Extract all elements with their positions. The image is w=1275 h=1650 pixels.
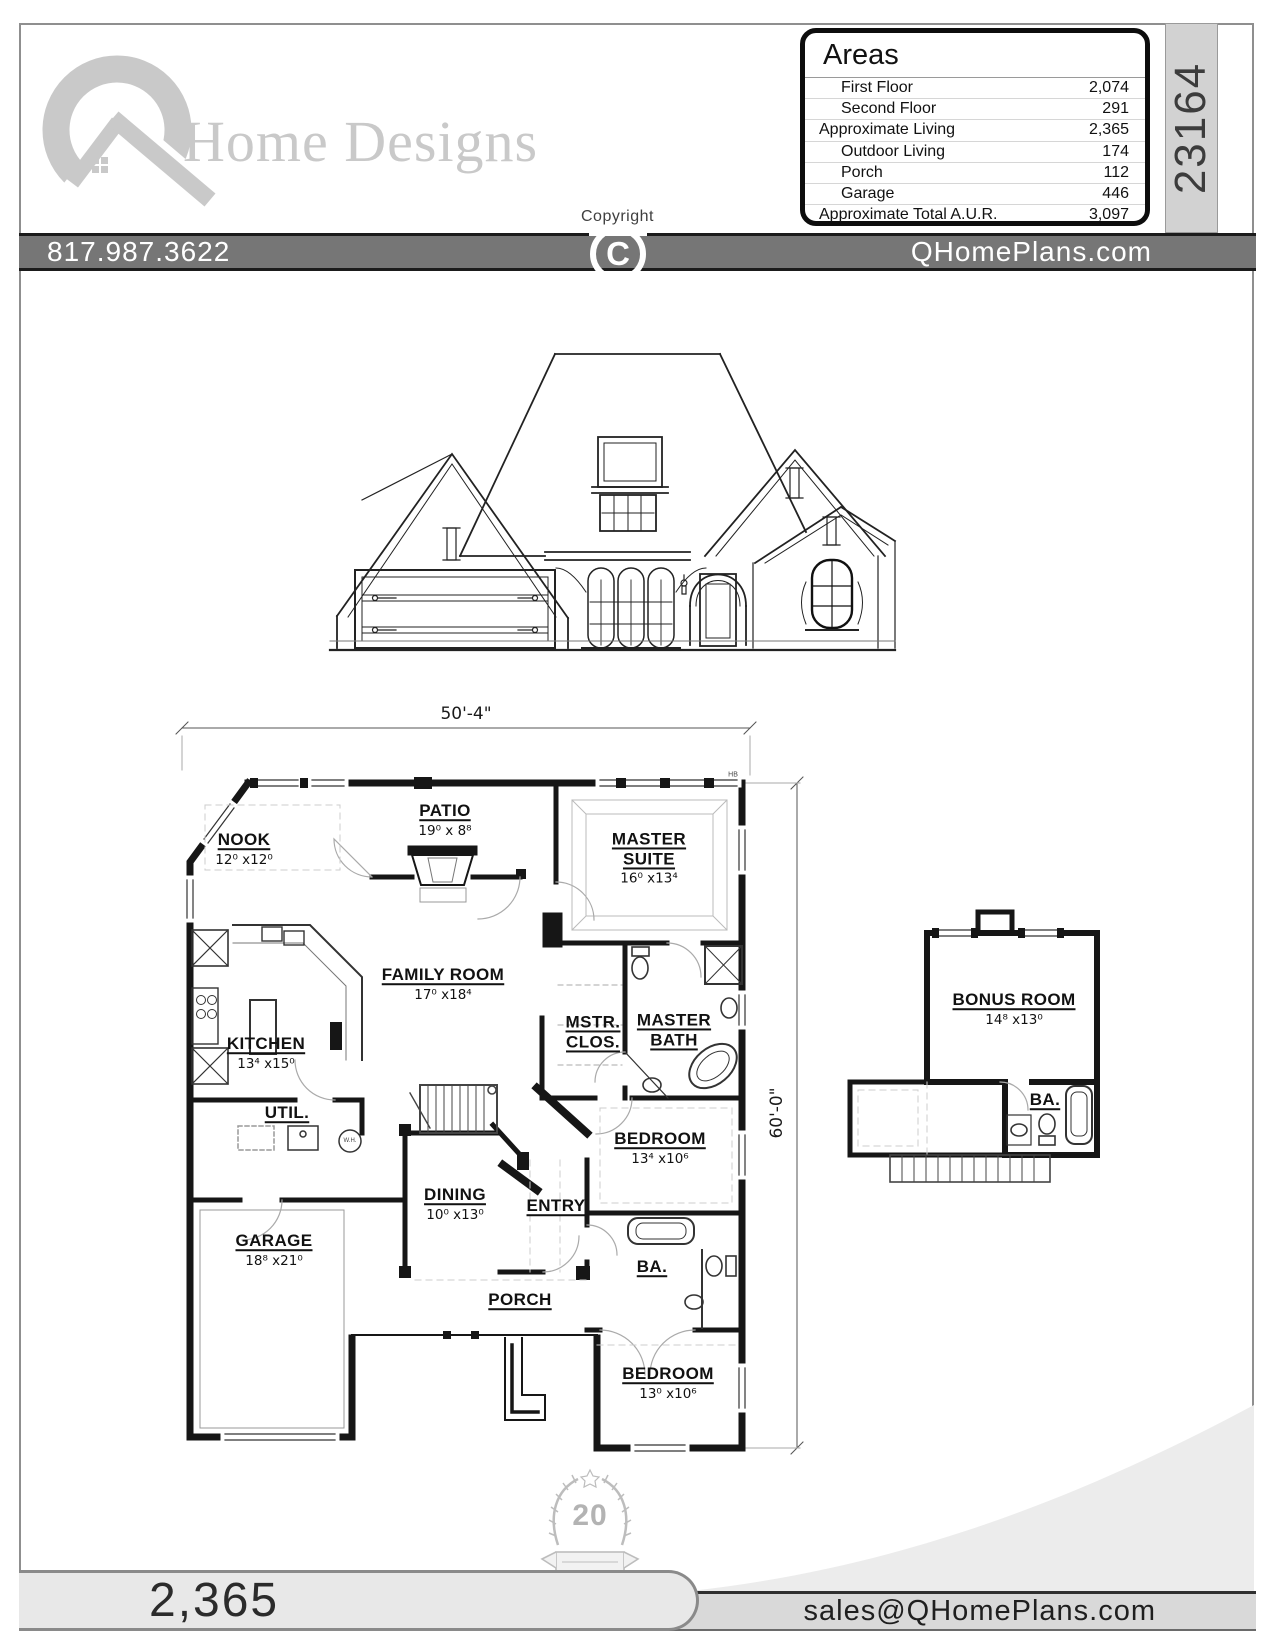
drawings-layer [0,0,1275,1650]
room-name: PORCH [488,1290,551,1310]
water-heater-label: W.H. [344,1138,357,1144]
room-label-entry: ENTRY [527,1196,586,1216]
badge-number: 20 [572,1499,607,1533]
room-name: MASTER BATH [626,1010,722,1049]
room-name: PATIO [418,801,471,821]
room-label-master-suite: MASTER SUITE16⁰ x13⁴ [597,829,701,886]
room-dimensions: 13⁴ x15⁰ [227,1056,305,1072]
living-area-tab: 2,365 [19,1570,699,1631]
room-label-kitchen: KITCHEN13⁴ x15⁰ [227,1034,305,1072]
room-label-dining: DINING10⁰ x13⁰ [424,1185,486,1223]
room-label-bath-2: BA. [1030,1090,1060,1110]
room-label-util: UTIL. [265,1103,310,1123]
plan-width-dimension: 50'-4" [440,704,491,724]
room-label-nook: NOOK12⁰ x12⁰ [215,830,272,868]
bonus-room-drawing [850,912,1097,1182]
room-label-family-room: FAMILY ROOM17⁰ x18⁴ [382,965,504,1003]
room-label-bonus-room: BONUS ROOM14⁸ x13⁰ [953,990,1076,1028]
room-dimensions: 13⁴ x10⁶ [614,1151,706,1167]
sales-email: sales@QHomePlans.com [804,1595,1156,1628]
room-dimensions: 17⁰ x18⁴ [382,987,504,1003]
room-dimensions: 13⁰ x10⁶ [622,1386,714,1402]
room-name: NOOK [215,830,272,850]
elevation-drawing [330,354,895,650]
room-label-garage: GARAGE18⁸ x21⁰ [235,1231,312,1269]
room-dimensions: 18⁸ x21⁰ [235,1253,312,1269]
room-name: ENTRY [527,1196,586,1216]
room-name: BONUS ROOM [953,990,1076,1010]
room-name: UTIL. [265,1103,310,1123]
living-area-total: 2,365 [149,1573,279,1628]
plan-depth-dimension: 60'-0" [767,1087,787,1138]
room-dimensions: 19⁰ x 8⁸ [418,823,471,839]
room-label-bedroom-2: BEDROOM13⁰ x10⁶ [622,1364,714,1402]
room-label-master-bath: MASTER BATH [626,1010,722,1049]
room-label-patio: PATIO19⁰ x 8⁸ [418,801,471,839]
room-name: BA. [637,1257,667,1277]
room-name: MASTER SUITE [597,829,701,868]
room-label-bath-1: BA. [637,1257,667,1277]
room-name: BEDROOM [622,1364,714,1384]
room-name: FAMILY ROOM [382,965,504,985]
room-label-mstr-clos: MSTR. CLOS. [557,1012,629,1051]
room-dimensions: 14⁸ x13⁰ [953,1012,1076,1028]
room-name: GARAGE [235,1231,312,1251]
room-name: DINING [424,1185,486,1205]
room-dimensions: 12⁰ x12⁰ [215,852,272,868]
hose-bib-marker: HB [728,772,738,779]
room-label-porch: PORCH [488,1290,551,1310]
room-dimensions: 16⁰ x13⁴ [597,871,701,887]
room-label-bedroom-1: BEDROOM13⁴ x10⁶ [614,1129,706,1167]
room-name: MSTR. CLOS. [557,1012,629,1051]
room-name: BEDROOM [614,1129,706,1149]
plan-sheet: Home Designs Copyright Areas First Floor… [0,0,1275,1650]
room-name: KITCHEN [227,1034,305,1054]
room-dimensions: 10⁰ x13⁰ [424,1207,486,1223]
room-name: BA. [1030,1090,1060,1110]
